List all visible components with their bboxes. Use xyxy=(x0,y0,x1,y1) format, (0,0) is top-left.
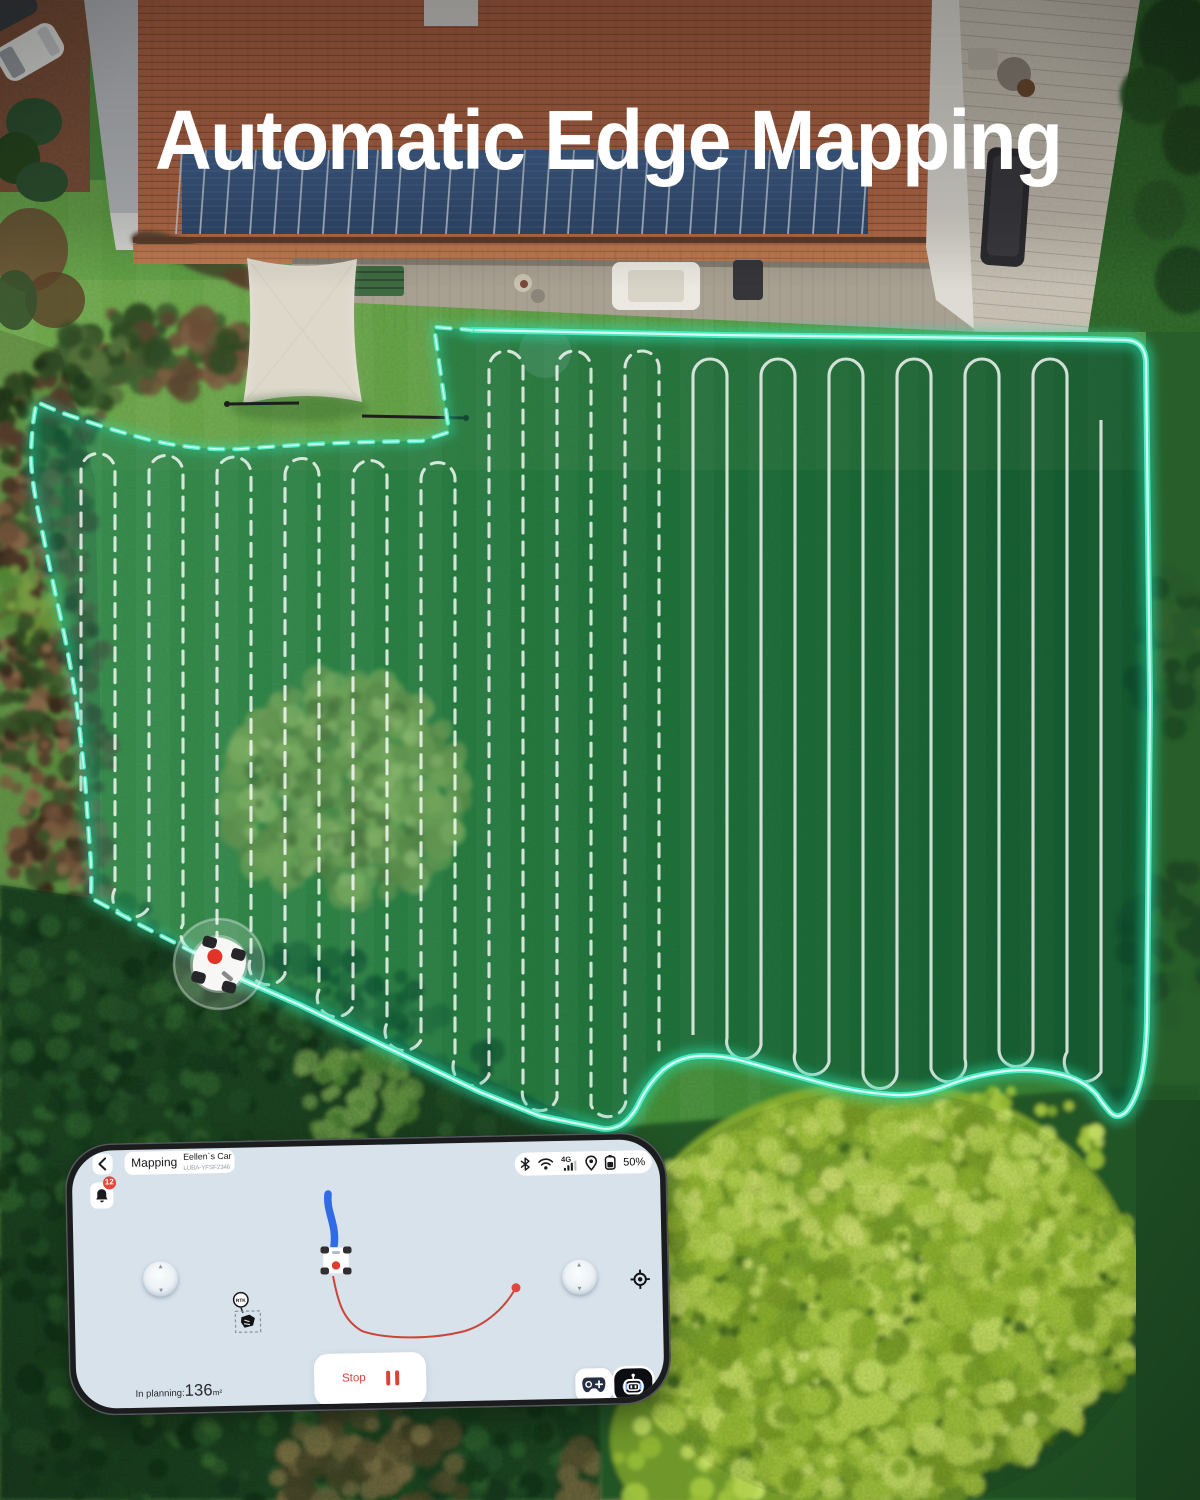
svg-text:RTK: RTK xyxy=(236,1298,247,1304)
